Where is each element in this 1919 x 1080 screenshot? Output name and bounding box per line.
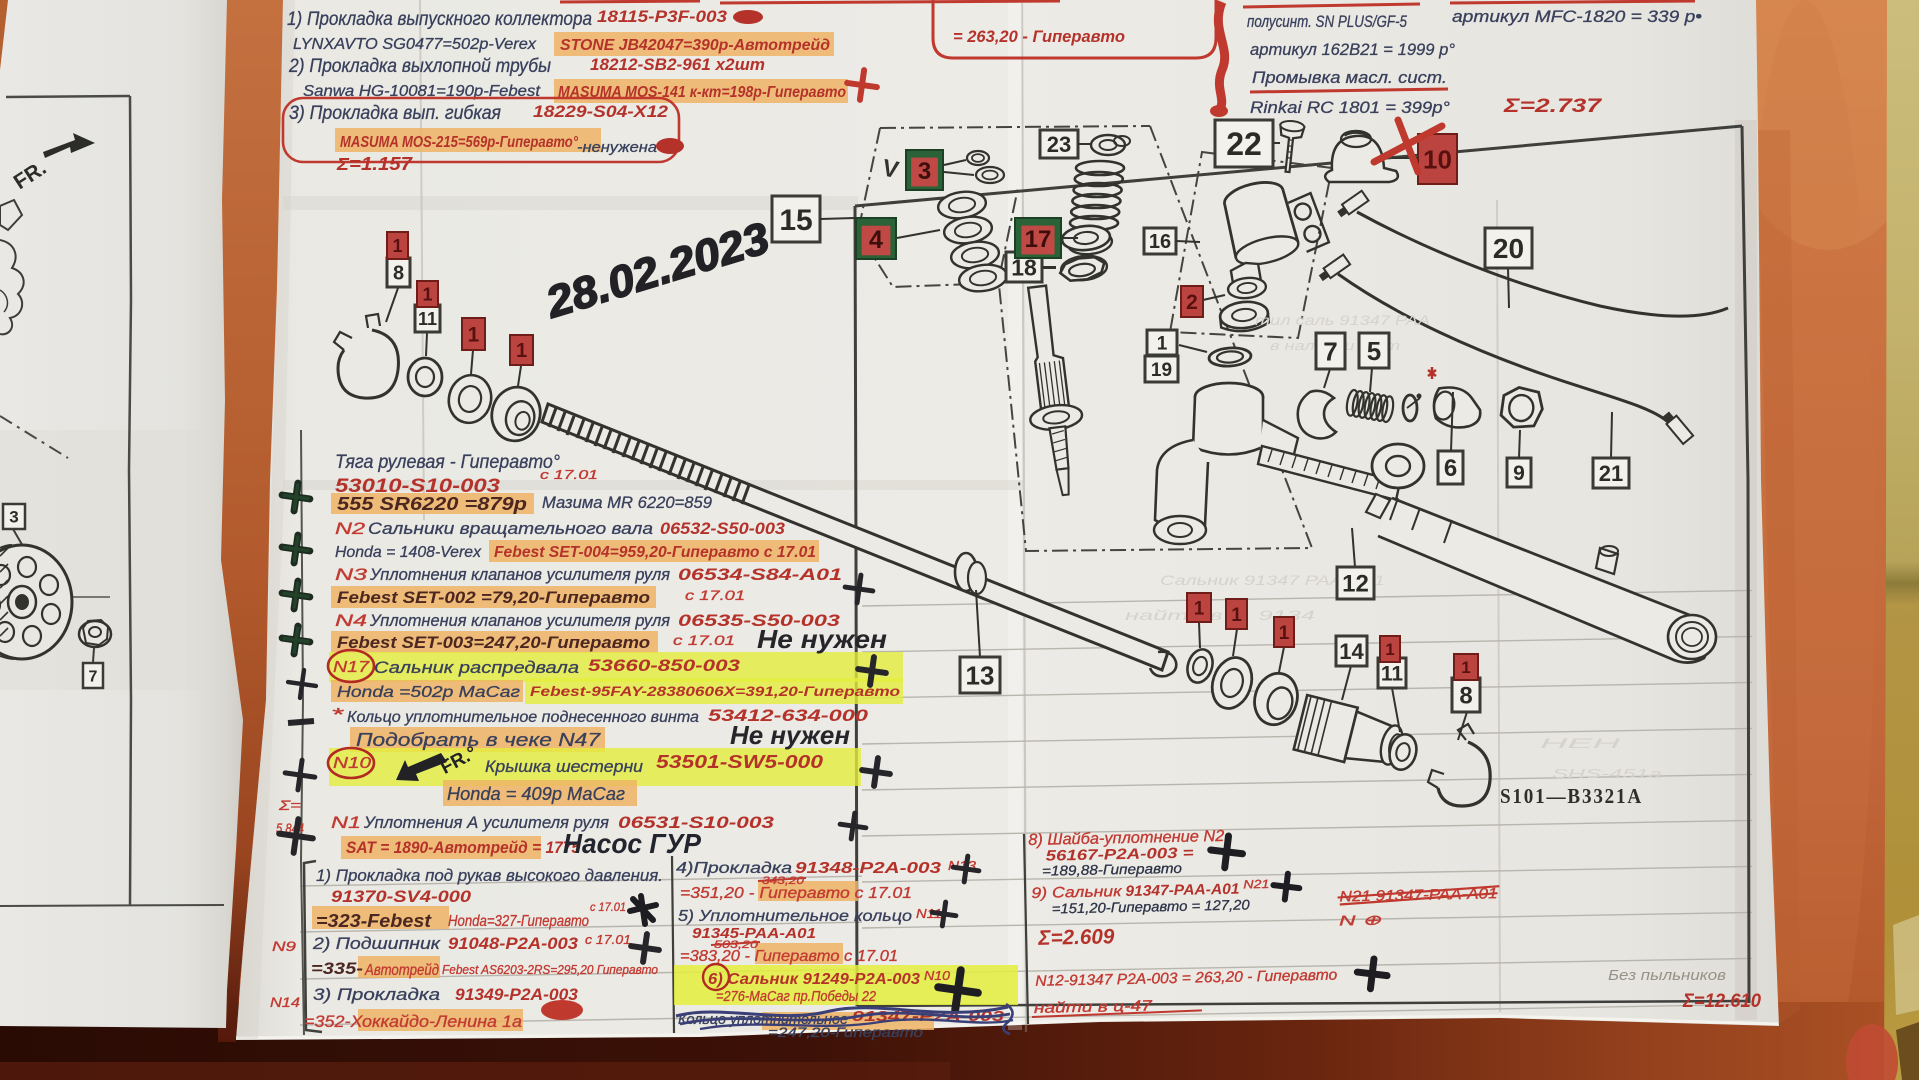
svg-text:Σ=1.157: Σ=1.157	[336, 154, 413, 174]
svg-text:7: 7	[89, 668, 98, 685]
svg-text:2: 2	[1186, 291, 1198, 314]
svg-text:с 17.01: с 17.01	[540, 467, 598, 482]
svg-text:N10: N10	[333, 755, 371, 772]
svg-text:14: 14	[1339, 639, 1364, 664]
svg-text:N14: N14	[270, 994, 300, 1010]
svg-text:Σ=2.609: Σ=2.609	[1037, 925, 1115, 950]
svg-text:полусинт. SN PLUS/GF-5: полусинт. SN PLUS/GF-5	[1247, 12, 1407, 31]
svg-text:MASUMA MOS-215=569р-Гиперавто°: MASUMA MOS-215=569р-Гиперавто°	[340, 134, 578, 151]
svg-text:N3: N3	[335, 565, 368, 584]
svg-text:с 17.01: с 17.01	[685, 587, 745, 603]
svg-text:Σ=2.737: Σ=2.737	[1503, 96, 1603, 117]
svg-text:19: 19	[1151, 360, 1172, 381]
svg-text:91048-Р2А-003: 91048-Р2А-003	[448, 934, 579, 953]
svg-text:Без пыльников: Без пыльников	[1608, 967, 1726, 984]
svg-text:Febest AS6203-2RS=295,20 Гипер: Febest AS6203-2RS=295,20 Гиперавто	[442, 962, 658, 977]
svg-text:8: 8	[1459, 683, 1472, 710]
svg-text:Σ=12.610: Σ=12.610	[1682, 991, 1761, 1012]
svg-text:Не нужен: Не нужен	[730, 720, 850, 750]
svg-text:1: 1	[1385, 640, 1394, 659]
svg-text:НЕН: НЕН	[1540, 735, 1622, 751]
svg-text:1) Прокладка под рукав высоког: 1) Прокладка под рукав высокого давления…	[316, 866, 663, 885]
svg-text:Автотрейд: Автотрейд	[364, 962, 439, 979]
svg-text:Febest SET-002 =79,20-Гиперавт: Febest SET-002 =79,20-Гиперавто	[337, 588, 650, 607]
svg-text:4: 4	[869, 226, 883, 254]
svg-text:Промывка масл. сист.: Промывка масл. сист.	[1252, 68, 1447, 87]
svg-text:18115-P3F-003: 18115-P3F-003	[597, 7, 728, 26]
svg-text:1: 1	[516, 340, 527, 362]
svg-text:17: 17	[1025, 226, 1052, 253]
svg-text:13: 13	[966, 660, 995, 690]
svg-text:Насос ГУР: Насос ГУР	[563, 828, 701, 859]
svg-text:3: 3	[918, 158, 931, 185]
svg-text:06534-S84-А01: 06534-S84-А01	[678, 565, 842, 584]
svg-text:06532-S50-003: 06532-S50-003	[660, 519, 786, 538]
svg-text:Honda = 1408-Verex: Honda = 1408-Verex	[335, 544, 482, 561]
svg-text:артикул MFC-1820 = 339 р•: артикул MFC-1820 = 339 р•	[1452, 7, 1702, 26]
svg-text:11: 11	[418, 309, 437, 329]
svg-text:N4: N4	[335, 611, 367, 630]
svg-text:555 SR6220 =879р: 555 SR6220 =879р	[337, 494, 527, 514]
svg-text:=323-Febest: =323-Febest	[316, 911, 432, 931]
svg-text:5: 5	[1367, 336, 1381, 366]
svg-text:N17: N17	[333, 659, 370, 676]
svg-text:2) Подшипник: 2) Подшипник	[312, 934, 441, 953]
svg-text:=351,20 - Гиперавто с 17.01: =351,20 - Гиперавто с 17.01	[680, 885, 912, 902]
svg-text:Не нужен: Не нужен	[757, 624, 887, 654]
svg-text:Мазима MR 6220=859: Мазима MR 6220=859	[542, 493, 713, 512]
svg-text:S101—B3321A: S101—B3321A	[1500, 784, 1643, 808]
svg-text:артикул 162В21 = 1999 р°: артикул 162В21 = 1999 р°	[1250, 40, 1455, 59]
svg-text:Febest SET-004=959,20-Гиперавт: Febest SET-004=959,20-Гиперавто с 17.01	[494, 544, 816, 561]
svg-text:Уплотнения клапанов усилителя: Уплотнения клапанов усилителя руля	[369, 611, 670, 630]
svg-text:1: 1	[1194, 598, 1205, 619]
svg-text:N21: N21	[1243, 877, 1269, 892]
svg-text:22: 22	[1226, 126, 1262, 162]
svg-text:12: 12	[1342, 571, 1369, 598]
svg-text:15: 15	[779, 204, 812, 237]
svg-text:Honda=327-Гиперавто: Honda=327-Гиперавто	[448, 913, 589, 930]
svg-text:Кольцо уплотнительное поднесен: Кольцо уплотнительное поднесенного винта	[347, 709, 699, 726]
svg-text:3) Прокладка: 3) Прокладка	[313, 985, 440, 1004]
svg-text:53660-850-003: 53660-850-003	[588, 656, 741, 675]
svg-text:=276-МаСаг пр.Победы 22: =276-МаСаг пр.Победы 22	[716, 988, 877, 1005]
svg-text:1: 1	[1157, 333, 1168, 354]
svg-text:Крышка шестерни: Крышка шестерни	[485, 757, 644, 776]
svg-text:7: 7	[1323, 336, 1337, 366]
svg-text:1: 1	[422, 284, 432, 304]
svg-text:=335-: =335-	[311, 959, 363, 978]
svg-text:Сальник распредвала: Сальник распредвала	[374, 658, 579, 677]
svg-text:Σ=: Σ=	[278, 797, 301, 813]
svg-text:N2: N2	[335, 519, 366, 538]
svg-text:20: 20	[1493, 233, 1524, 264]
svg-text:Febest-95FAY-28380606Х=391,20-: Febest-95FAY-28380606Х=391,20-Гиперавто	[530, 683, 901, 699]
svg-text:1: 1	[1231, 605, 1242, 626]
svg-text:6: 6	[1444, 455, 1457, 482]
svg-text:6) Сальник 91249-Р2А-003: 6) Сальник 91249-Р2А-003	[708, 971, 920, 988]
svg-text:18212-SB2-961 х2шт: 18212-SB2-961 х2шт	[590, 55, 765, 74]
svg-text:с 17.01: с 17.01	[673, 632, 735, 648]
svg-text:1: 1	[1279, 623, 1290, 644]
svg-text:N ⊕: N ⊕	[1339, 912, 1382, 929]
svg-text:=352-Хоккайдо-Ленина 1а: =352-Хоккайдо-Ленина 1а	[304, 1012, 522, 1031]
svg-text:N10: N10	[924, 968, 951, 983]
svg-text:11: 11	[1381, 663, 1404, 686]
svg-text:с 17.01: с 17.01	[585, 932, 631, 947]
svg-text:18229-S04-X12: 18229-S04-X12	[533, 102, 669, 121]
svg-text:1) Прокладка выпускного коллек: 1) Прокладка выпускного коллектора	[287, 9, 592, 30]
svg-text:N1: N1	[331, 813, 361, 832]
svg-text:3) Прокладка вып. гибкая: 3) Прокладка вып. гибкая	[289, 103, 501, 124]
svg-text:Сальники вращательного вала: Сальники вращательного вала	[368, 519, 653, 538]
svg-text:-ненужена: -ненужена	[577, 139, 657, 156]
svg-text:SHS-451а: SHS-451а	[1552, 766, 1662, 781]
svg-text:=189,88-Гиперавто: =189,88-Гиперавто	[1042, 860, 1183, 879]
svg-text:Honda = 409р МаСаг: Honda = 409р МаСаг	[447, 784, 625, 804]
svg-text:Febest SET-003=247,20-Гиперавт: Febest SET-003=247,20-Гиперавто	[337, 633, 650, 652]
svg-text:91348-Р2А-003: 91348-Р2А-003	[795, 860, 941, 877]
svg-text:= 263,20 - Гиперавто: = 263,20 - Гиперавто	[953, 27, 1125, 46]
svg-text:1: 1	[392, 236, 402, 256]
svg-text:SAT = 1890-Автотрейд = 1775: SAT = 1890-Автотрейд = 1775	[346, 838, 580, 857]
svg-text:8: 8	[393, 263, 404, 285]
svg-text:с 17.01: с 17.01	[590, 900, 626, 914]
svg-text:3: 3	[9, 508, 18, 527]
svg-text:LYNXAVTO SG0477=502р-Verex: LYNXAVTO SG0477=502р-Verex	[293, 36, 537, 53]
svg-text:23: 23	[1047, 132, 1071, 157]
svg-text:Подобрать в чеке N47: Подобрать в чеке N47	[356, 730, 601, 750]
svg-text:1: 1	[468, 324, 480, 347]
svg-text:53501-SW5-000: 53501-SW5-000	[656, 752, 823, 772]
svg-text:9: 9	[1513, 462, 1525, 485]
svg-text:Уплотнения клапанов усилителя: Уплотнения клапанов усилителя руля	[369, 565, 670, 584]
svg-text:21: 21	[1599, 461, 1623, 486]
svg-text:Тяга рулевая - Гиперавто°: Тяга рулевая - Гиперавто°	[335, 452, 560, 473]
svg-text:91370-SV4-000: 91370-SV4-000	[331, 887, 472, 906]
svg-text:Rinkai RC 1801 = 399р°: Rinkai RC 1801 = 399р°	[1250, 98, 1450, 117]
svg-text:10: 10	[1423, 144, 1452, 174]
svg-text:STONE JB42047=390р-Автотрейд: STONE JB42047=390р-Автотрейд	[560, 37, 830, 54]
svg-text:5) Уплотнительное кольцо: 5) Уплотнительное кольцо	[678, 908, 912, 925]
svg-text:1: 1	[1461, 658, 1470, 677]
svg-text:*: *	[331, 705, 345, 725]
svg-text:2) Прокладка выхлопной трубы: 2) Прокладка выхлопной трубы	[288, 56, 551, 77]
svg-text:16: 16	[1149, 231, 1171, 253]
svg-text:=383,20 - Гиперавто с 17.01: =383,20 - Гиперавто с 17.01	[680, 948, 898, 965]
svg-text:тил саль 91347 РАА: тил саль 91347 РАА	[1255, 312, 1430, 328]
svg-text:Honda =502р МаСаг: Honda =502р МаСаг	[337, 684, 520, 701]
svg-text:N9: N9	[272, 938, 296, 954]
